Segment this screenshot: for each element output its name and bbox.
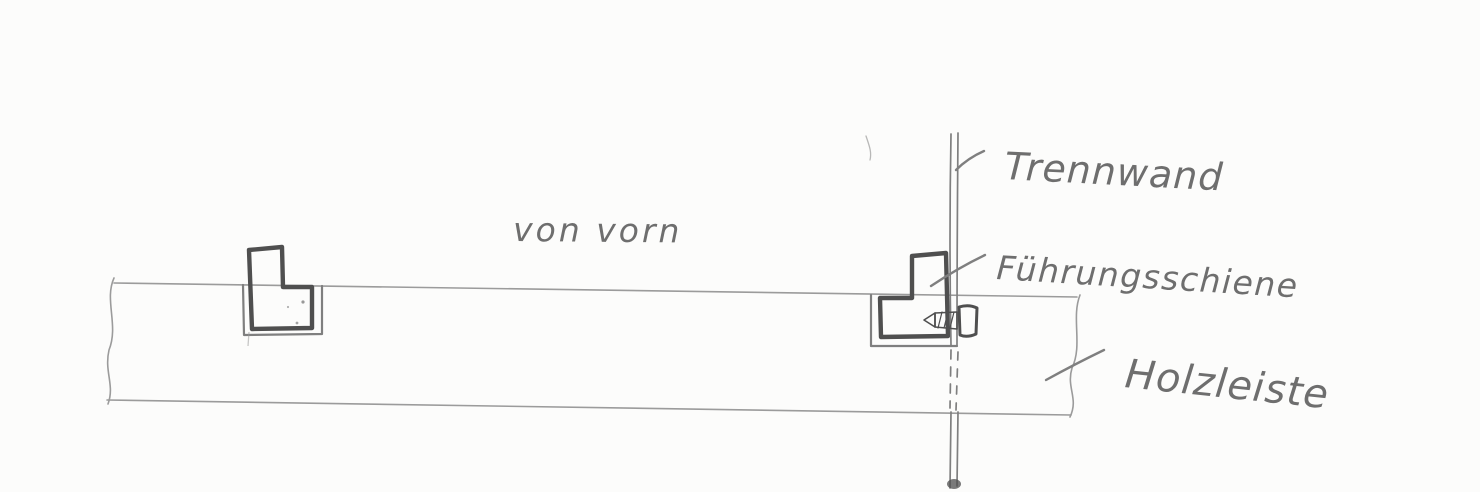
sketch-drawing: von vorn Trennwand Führungsschiene Holzl… <box>0 0 1480 492</box>
pencil-sketch-page: von vorn Trennwand Führungsschiene Holzl… <box>0 0 1480 492</box>
wall-left-line-lower <box>950 412 951 488</box>
paper-background <box>0 0 1480 492</box>
wall-right-line-lower <box>957 412 958 486</box>
wall-left-line-upper <box>950 134 951 345</box>
wall-bottom-smudge <box>947 479 961 489</box>
view-caption-label: von vorn <box>513 210 683 250</box>
